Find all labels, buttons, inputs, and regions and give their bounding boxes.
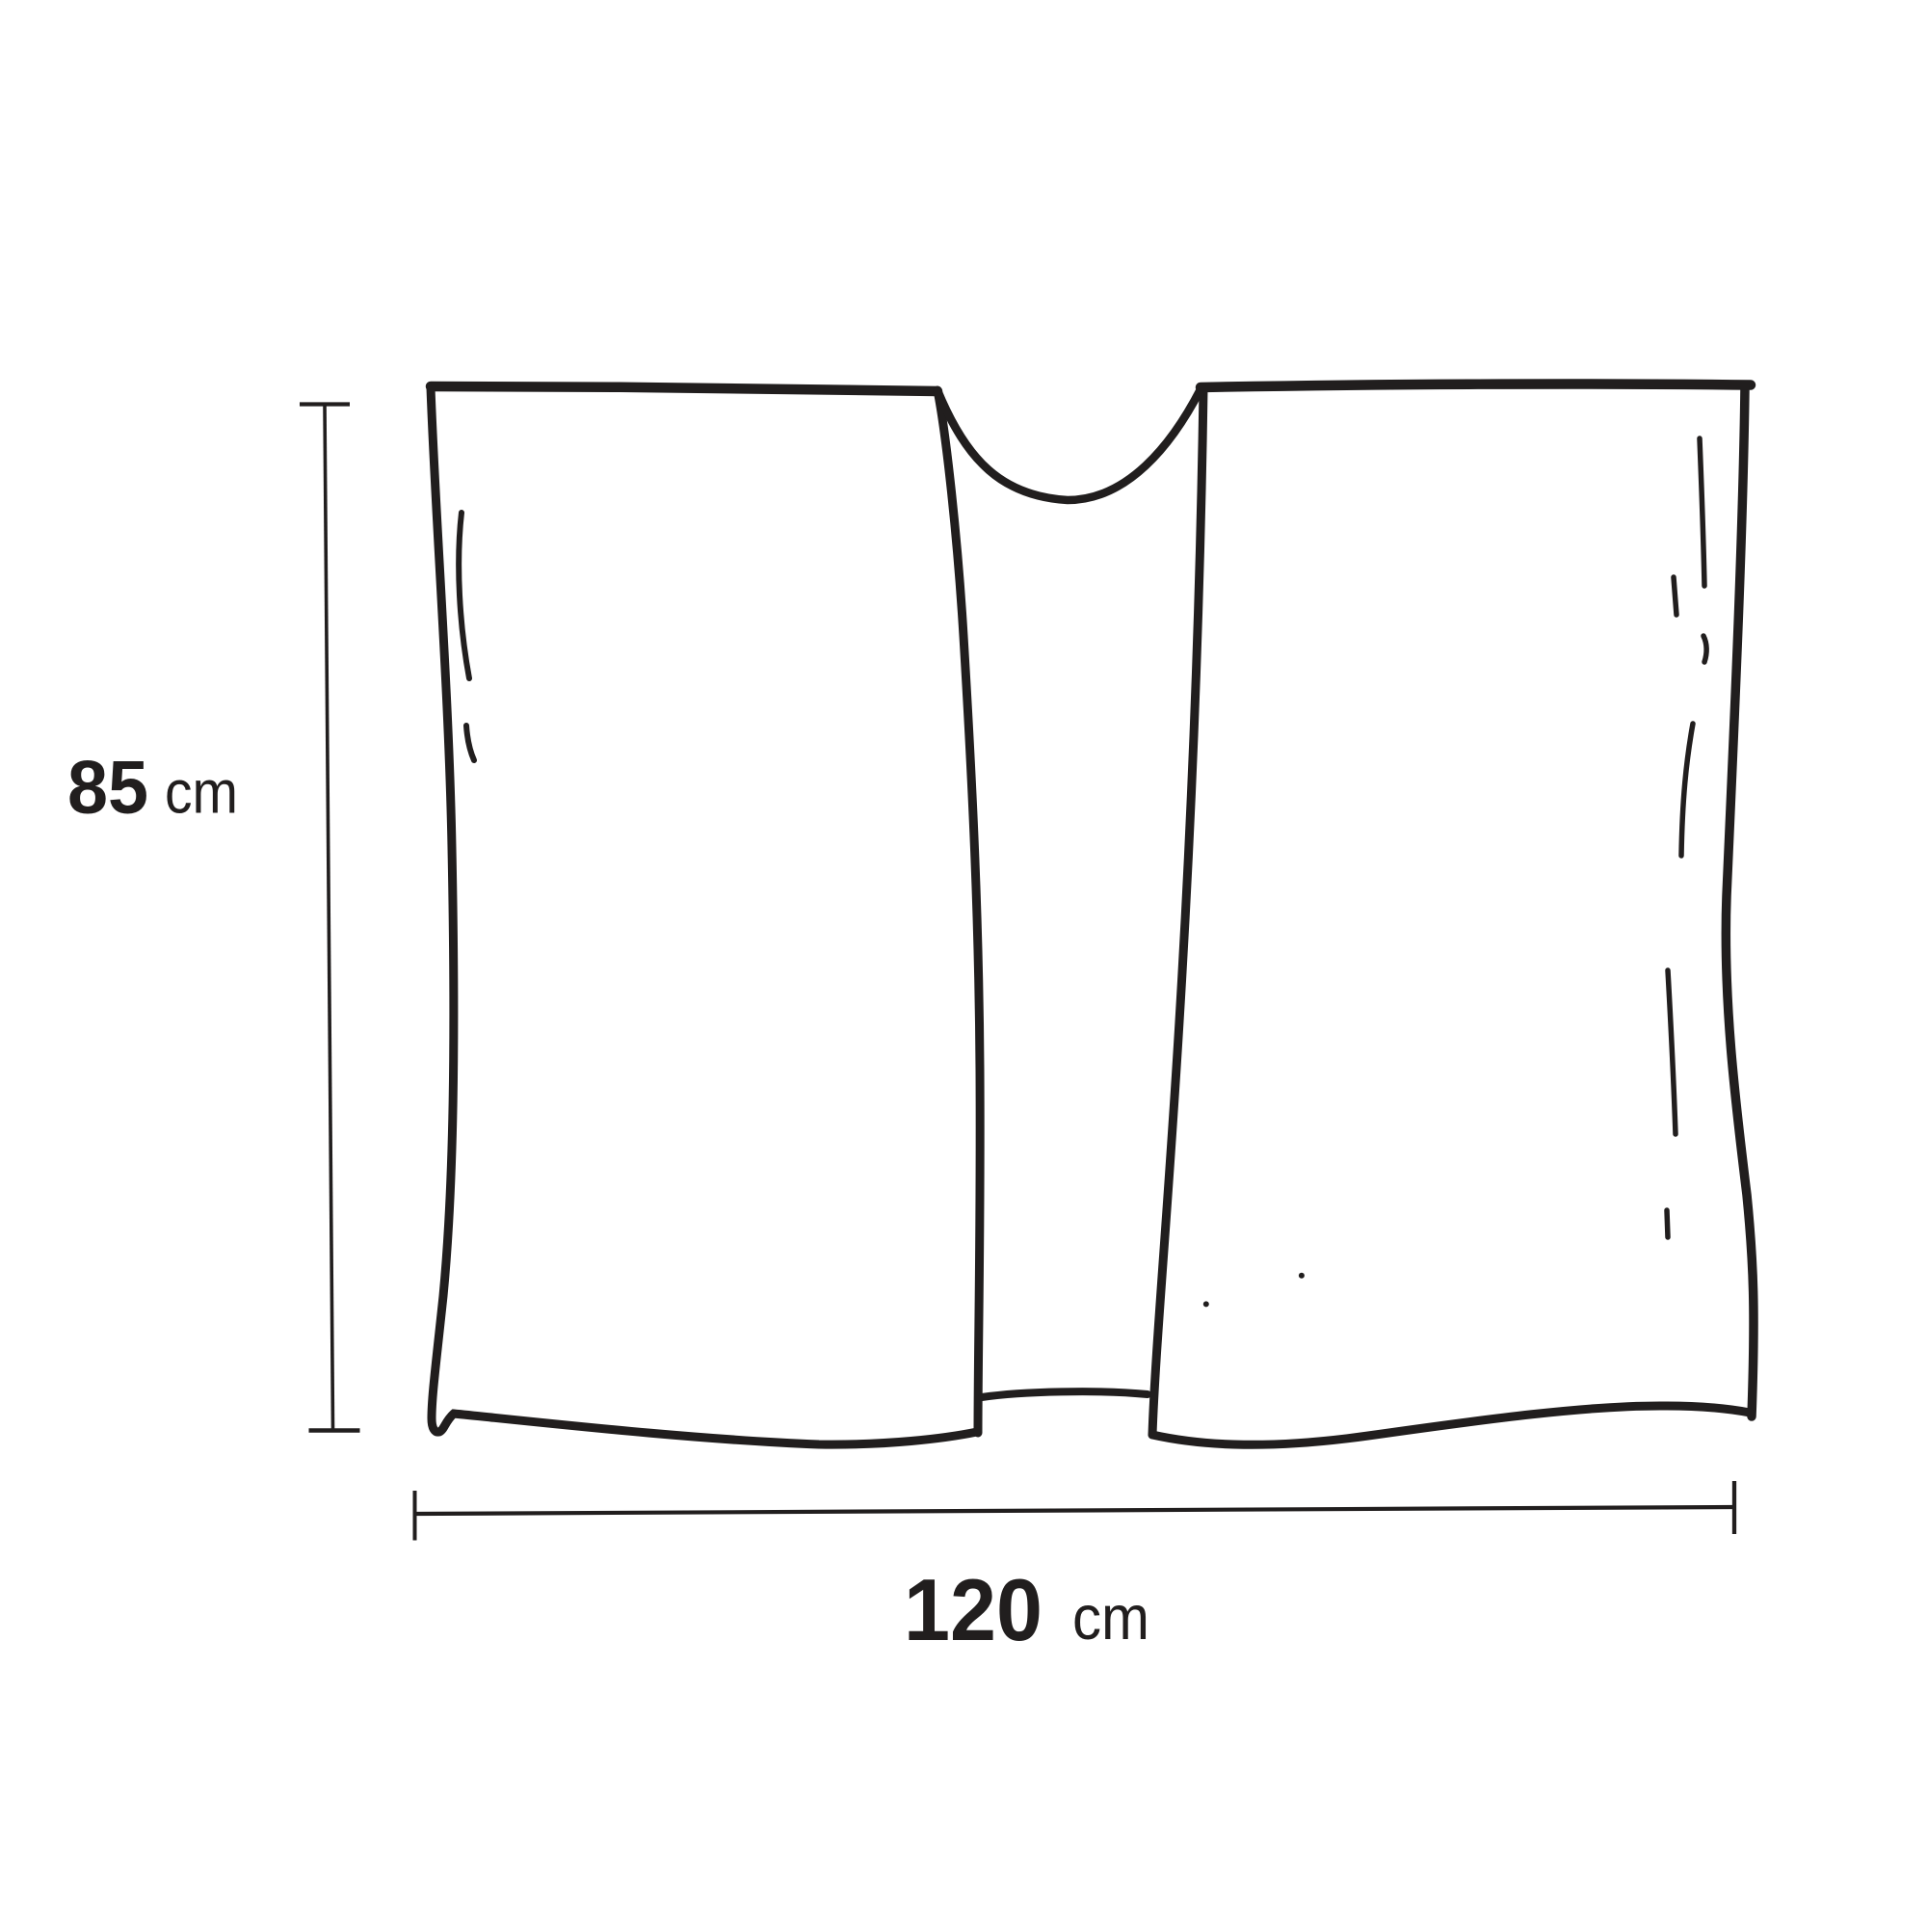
svg-text:cm: cm bbox=[1072, 1582, 1149, 1653]
svg-text:120: 120 bbox=[904, 1562, 1043, 1659]
svg-text:cm: cm bbox=[165, 759, 238, 827]
svg-text:85: 85 bbox=[67, 745, 148, 830]
